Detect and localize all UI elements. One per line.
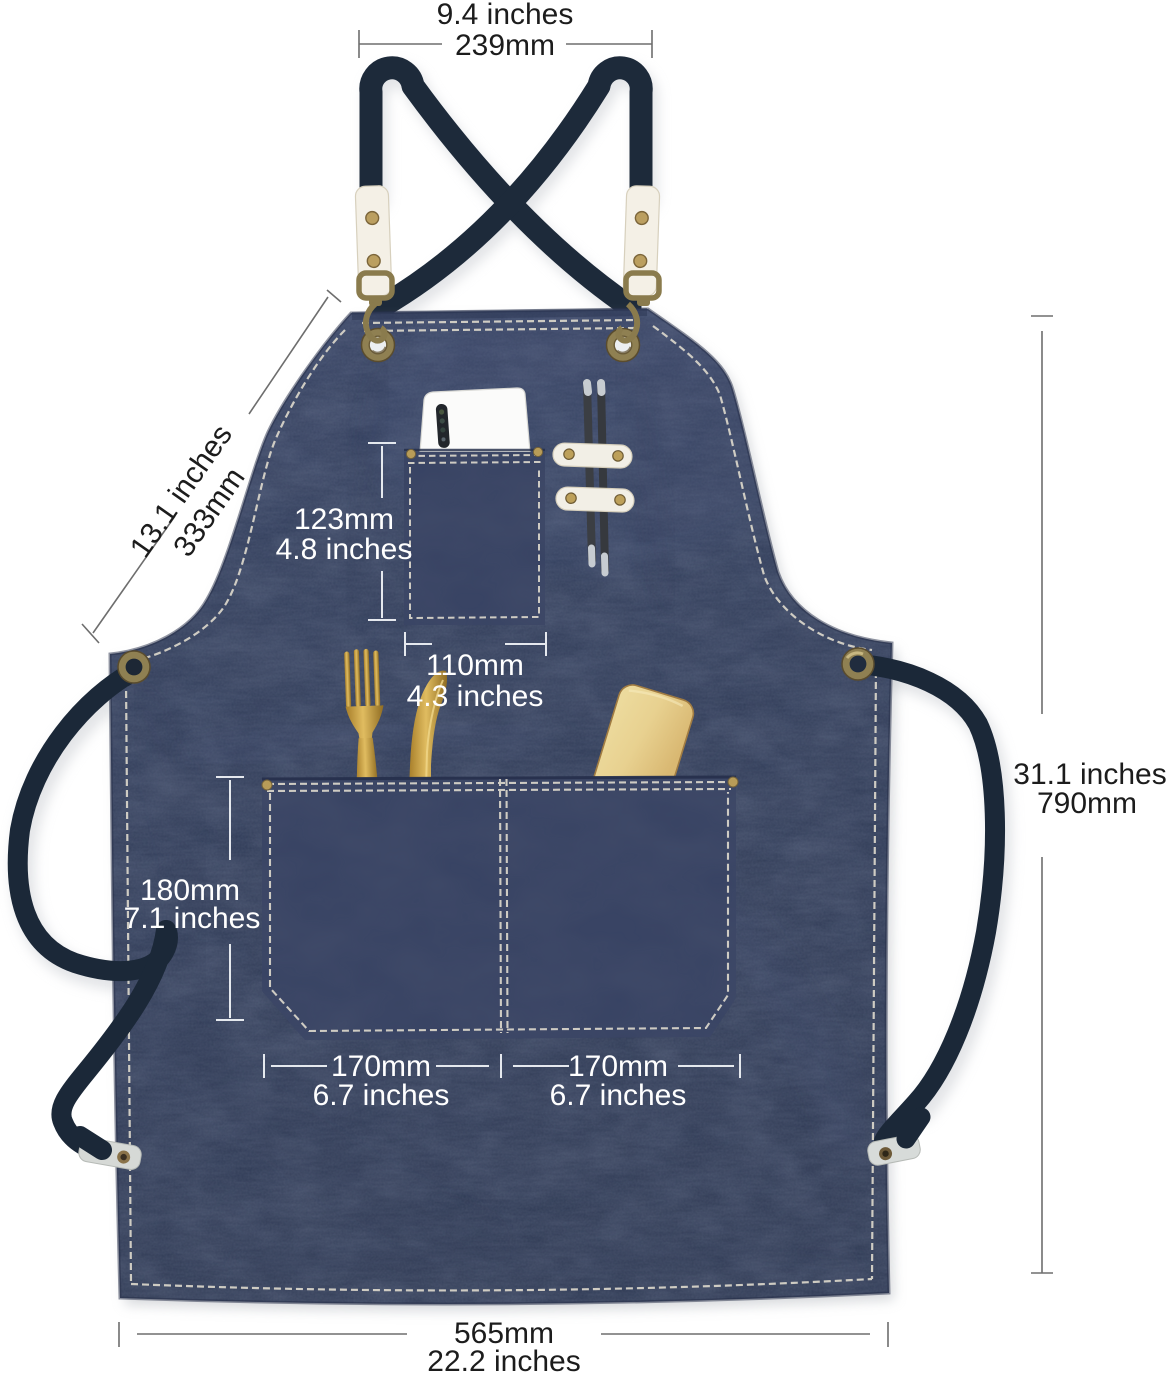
- svg-text:7.1 inches: 7.1 inches: [124, 902, 261, 935]
- svg-text:4.3 inches: 4.3 inches: [407, 680, 544, 713]
- svg-text:239mm: 239mm: [455, 29, 555, 62]
- svg-text:123mm: 123mm: [294, 503, 394, 536]
- svg-text:9.4 inches: 9.4 inches: [437, 0, 574, 31]
- svg-text:110mm: 110mm: [426, 649, 524, 682]
- svg-text:6.7 inches: 6.7 inches: [550, 1079, 687, 1112]
- svg-text:6.7 inches: 6.7 inches: [313, 1079, 450, 1112]
- svg-text:790mm: 790mm: [1037, 787, 1137, 820]
- svg-text:4.8 inches: 4.8 inches: [276, 533, 413, 566]
- svg-text:22.2 inches: 22.2 inches: [427, 1345, 580, 1376]
